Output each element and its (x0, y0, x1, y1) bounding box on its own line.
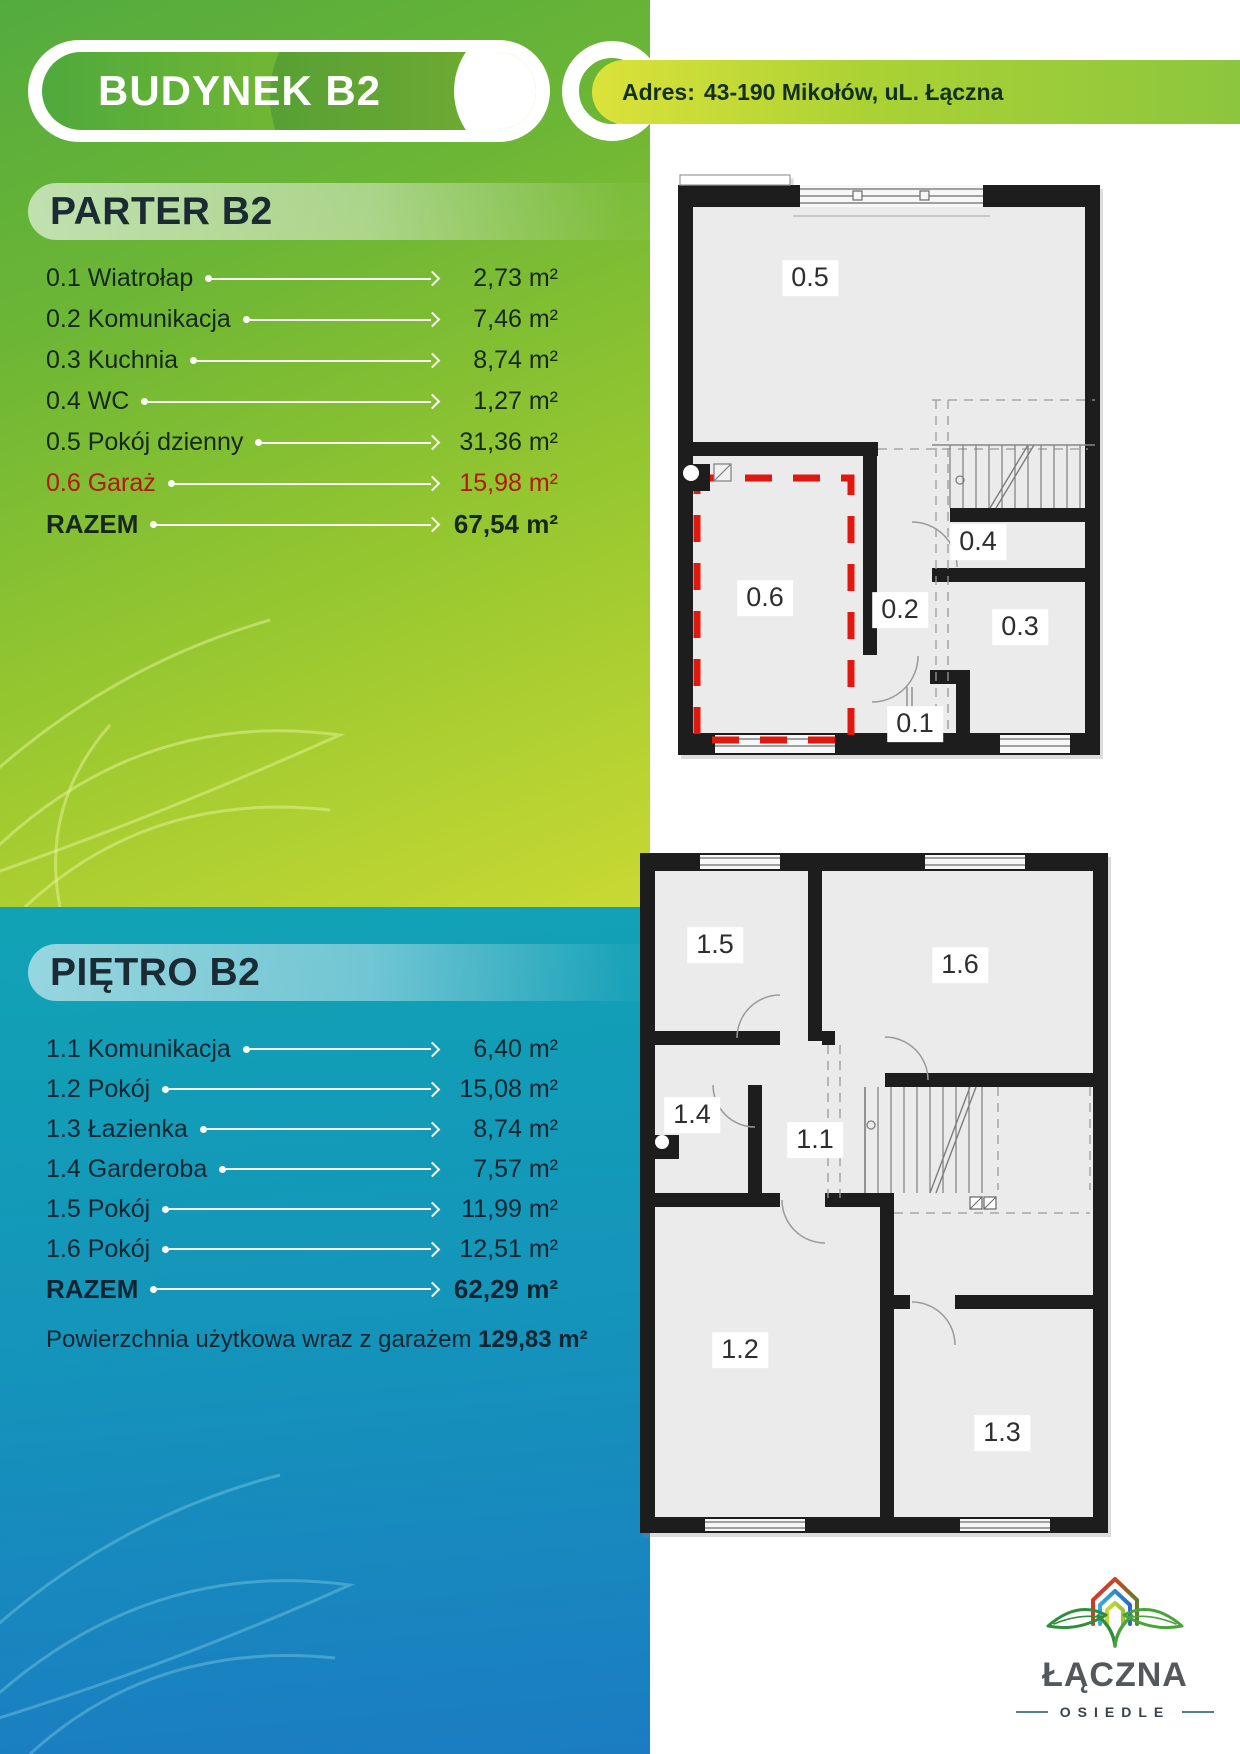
arrow-icon (425, 1201, 441, 1217)
brochure-page: BUDYNEK B2 Adres: 43-190 Mikołów, uL. Łą… (0, 0, 1240, 1754)
summary-label: Powierzchnia użytkowa wraz z garażem (46, 1326, 472, 1353)
table-row: 1.3 Łazienka 8,74 m² (46, 1109, 558, 1149)
summary-area: 129,83 m² (478, 1326, 587, 1353)
arrow-icon (425, 476, 441, 492)
room-chip-0-5: 0.5 (782, 260, 838, 296)
total-label: RAZEM (46, 1274, 138, 1305)
leader-line (150, 519, 438, 530)
room-chip-0-2: 0.2 (872, 592, 928, 628)
table-row: 1.1 Komunikacja 6,40 m² (46, 1029, 558, 1069)
arrow-icon (425, 271, 441, 287)
arrow-icon (425, 353, 441, 369)
table-row: 0.5 Pokój dzienny 31,36 m² (46, 422, 558, 463)
room-label: 1.4 Garderoba (46, 1155, 207, 1184)
total-area: 62,29 m² (450, 1274, 558, 1305)
room-chip-0-6: 0.6 (737, 580, 793, 616)
room-label: 1.2 Pokój (46, 1075, 150, 1104)
room-area: 15,08 m² (450, 1075, 558, 1104)
leader-line (190, 355, 438, 366)
floor-title-parter-label: PARTER B2 (50, 190, 273, 234)
dash-icon (1182, 1711, 1214, 1713)
room-area: 8,74 m² (450, 1115, 558, 1144)
building-title-inner-pill: BUDYNEK B2 (42, 52, 536, 130)
address-label: Adres: (622, 79, 695, 106)
logo-house-icon (1040, 1562, 1190, 1654)
logo-name: ŁĄCZNA (1010, 1656, 1220, 1695)
leader-line (219, 1164, 438, 1175)
room-label: 1.3 Łazienka (46, 1115, 188, 1144)
laczna-logo: ŁĄCZNA OSIEDLE (1010, 1562, 1220, 1720)
room-label: 0.2 Komunikacja (46, 305, 231, 334)
room-label: 0.6 Garaż (46, 469, 156, 498)
room-list-pietro: 1.1 Komunikacja 6,40 m² 1.2 Pokój 15,08 … (46, 1029, 558, 1309)
room-chip-1-1: 1.1 (787, 1122, 843, 1158)
room-label: 0.4 WC (46, 387, 129, 416)
leader-line (200, 1124, 438, 1135)
arrow-icon (425, 1081, 441, 1097)
room-area: 2,73 m² (450, 264, 558, 293)
room-chip-0-3: 0.3 (992, 609, 1048, 645)
table-row: 0.1 Wiatrołap 2,73 m² (46, 258, 558, 299)
room-area: 7,57 m² (450, 1155, 558, 1184)
room-area: 1,27 m² (450, 387, 558, 416)
room-chip-1-5: 1.5 (687, 927, 743, 963)
room-chip-0-4: 0.4 (950, 524, 1006, 560)
building-title-pill: BUDYNEK B2 (28, 40, 550, 142)
arrow-icon (425, 435, 441, 451)
arrow-icon (425, 1241, 441, 1257)
leader-line (150, 1284, 438, 1295)
arrow-icon (425, 1121, 441, 1137)
leader-line (255, 437, 438, 448)
room-label: 1.1 Komunikacja (46, 1035, 231, 1064)
room-area: 7,46 m² (450, 305, 558, 334)
table-row: 1.6 Pokój 12,51 m² (46, 1229, 558, 1269)
room-chip-1-4: 1.4 (664, 1097, 720, 1133)
room-chip-1-6: 1.6 (932, 947, 988, 983)
leader-line (243, 314, 438, 325)
table-row-garage: 0.6 Garaż 15,98 m² (46, 463, 558, 504)
room-chip-1-3: 1.3 (974, 1415, 1030, 1451)
address-value: 43-190 Mikołów, uL. Łączna (704, 79, 1004, 106)
total-label: RAZEM (46, 509, 138, 540)
table-row: 0.3 Kuchnia 8,74 m² (46, 340, 558, 381)
arrow-icon (425, 1281, 441, 1297)
room-area: 31,36 m² (450, 428, 558, 457)
room-label: 1.5 Pokój (46, 1195, 150, 1224)
floorplan-ground-drawing (660, 170, 1110, 770)
floor-title-parter: PARTER B2 (28, 183, 650, 240)
leader-line (168, 478, 438, 489)
room-area: 11,99 m² (450, 1195, 558, 1224)
floor-title-pietro: PIĘTRO B2 (28, 944, 650, 1001)
room-area: 15,98 m² (450, 469, 558, 498)
leader-line (243, 1044, 438, 1055)
room-chip-1-2: 1.2 (712, 1332, 768, 1368)
floorplan-first: 1.5 1.6 1.4 1.1 1.2 1.3 (630, 845, 1120, 1555)
arrow-icon (425, 517, 441, 533)
room-chip-0-1: 0.1 (887, 706, 943, 742)
floor-title-pietro-label: PIĘTRO B2 (50, 951, 260, 995)
room-label: 0.5 Pokój dzienny (46, 428, 243, 457)
arrow-icon (425, 1041, 441, 1057)
table-row: 1.5 Pokój 11,99 m² (46, 1189, 558, 1229)
arrow-icon (425, 394, 441, 410)
table-row: 0.4 WC 1,27 m² (46, 381, 558, 422)
total-area: 67,54 m² (450, 509, 558, 540)
room-area: 8,74 m² (450, 346, 558, 375)
logo-subtitle: OSIEDLE (1060, 1704, 1170, 1720)
leader-line (205, 273, 438, 284)
table-row: 0.2 Komunikacja 7,46 m² (46, 299, 558, 340)
total-row: RAZEM 67,54 m² (46, 504, 558, 545)
leader-line (162, 1084, 438, 1095)
leader-line (141, 396, 438, 407)
room-area: 6,40 m² (450, 1035, 558, 1064)
room-label: 0.1 Wiatrołap (46, 264, 193, 293)
room-label: 0.3 Kuchnia (46, 346, 178, 375)
room-label: 1.6 Pokój (46, 1235, 150, 1264)
table-row: 1.2 Pokój 15,08 m² (46, 1069, 558, 1109)
room-list-parter: 0.1 Wiatrołap 2,73 m² 0.2 Komunikacja 7,… (46, 258, 558, 545)
address-bar: Adres: 43-190 Mikołów, uL. Łączna (592, 60, 1240, 124)
arrow-icon (425, 312, 441, 328)
floorplan-ground: 0.5 0.6 0.2 0.4 0.3 0.1 (660, 170, 1110, 770)
arrow-icon (425, 1161, 441, 1177)
building-title: BUDYNEK B2 (42, 52, 536, 130)
dash-icon (1016, 1711, 1048, 1713)
summary-row: Powierzchnia użytkowa wraz z garażem 129… (46, 1326, 636, 1354)
table-row: 1.4 Garderoba 7,57 m² (46, 1149, 558, 1189)
logo-subtitle-row: OSIEDLE (1010, 1704, 1220, 1720)
room-area: 12,51 m² (450, 1235, 558, 1264)
leader-line (162, 1204, 438, 1215)
leader-line (162, 1244, 438, 1255)
total-row: RAZEM 62,29 m² (46, 1269, 558, 1309)
